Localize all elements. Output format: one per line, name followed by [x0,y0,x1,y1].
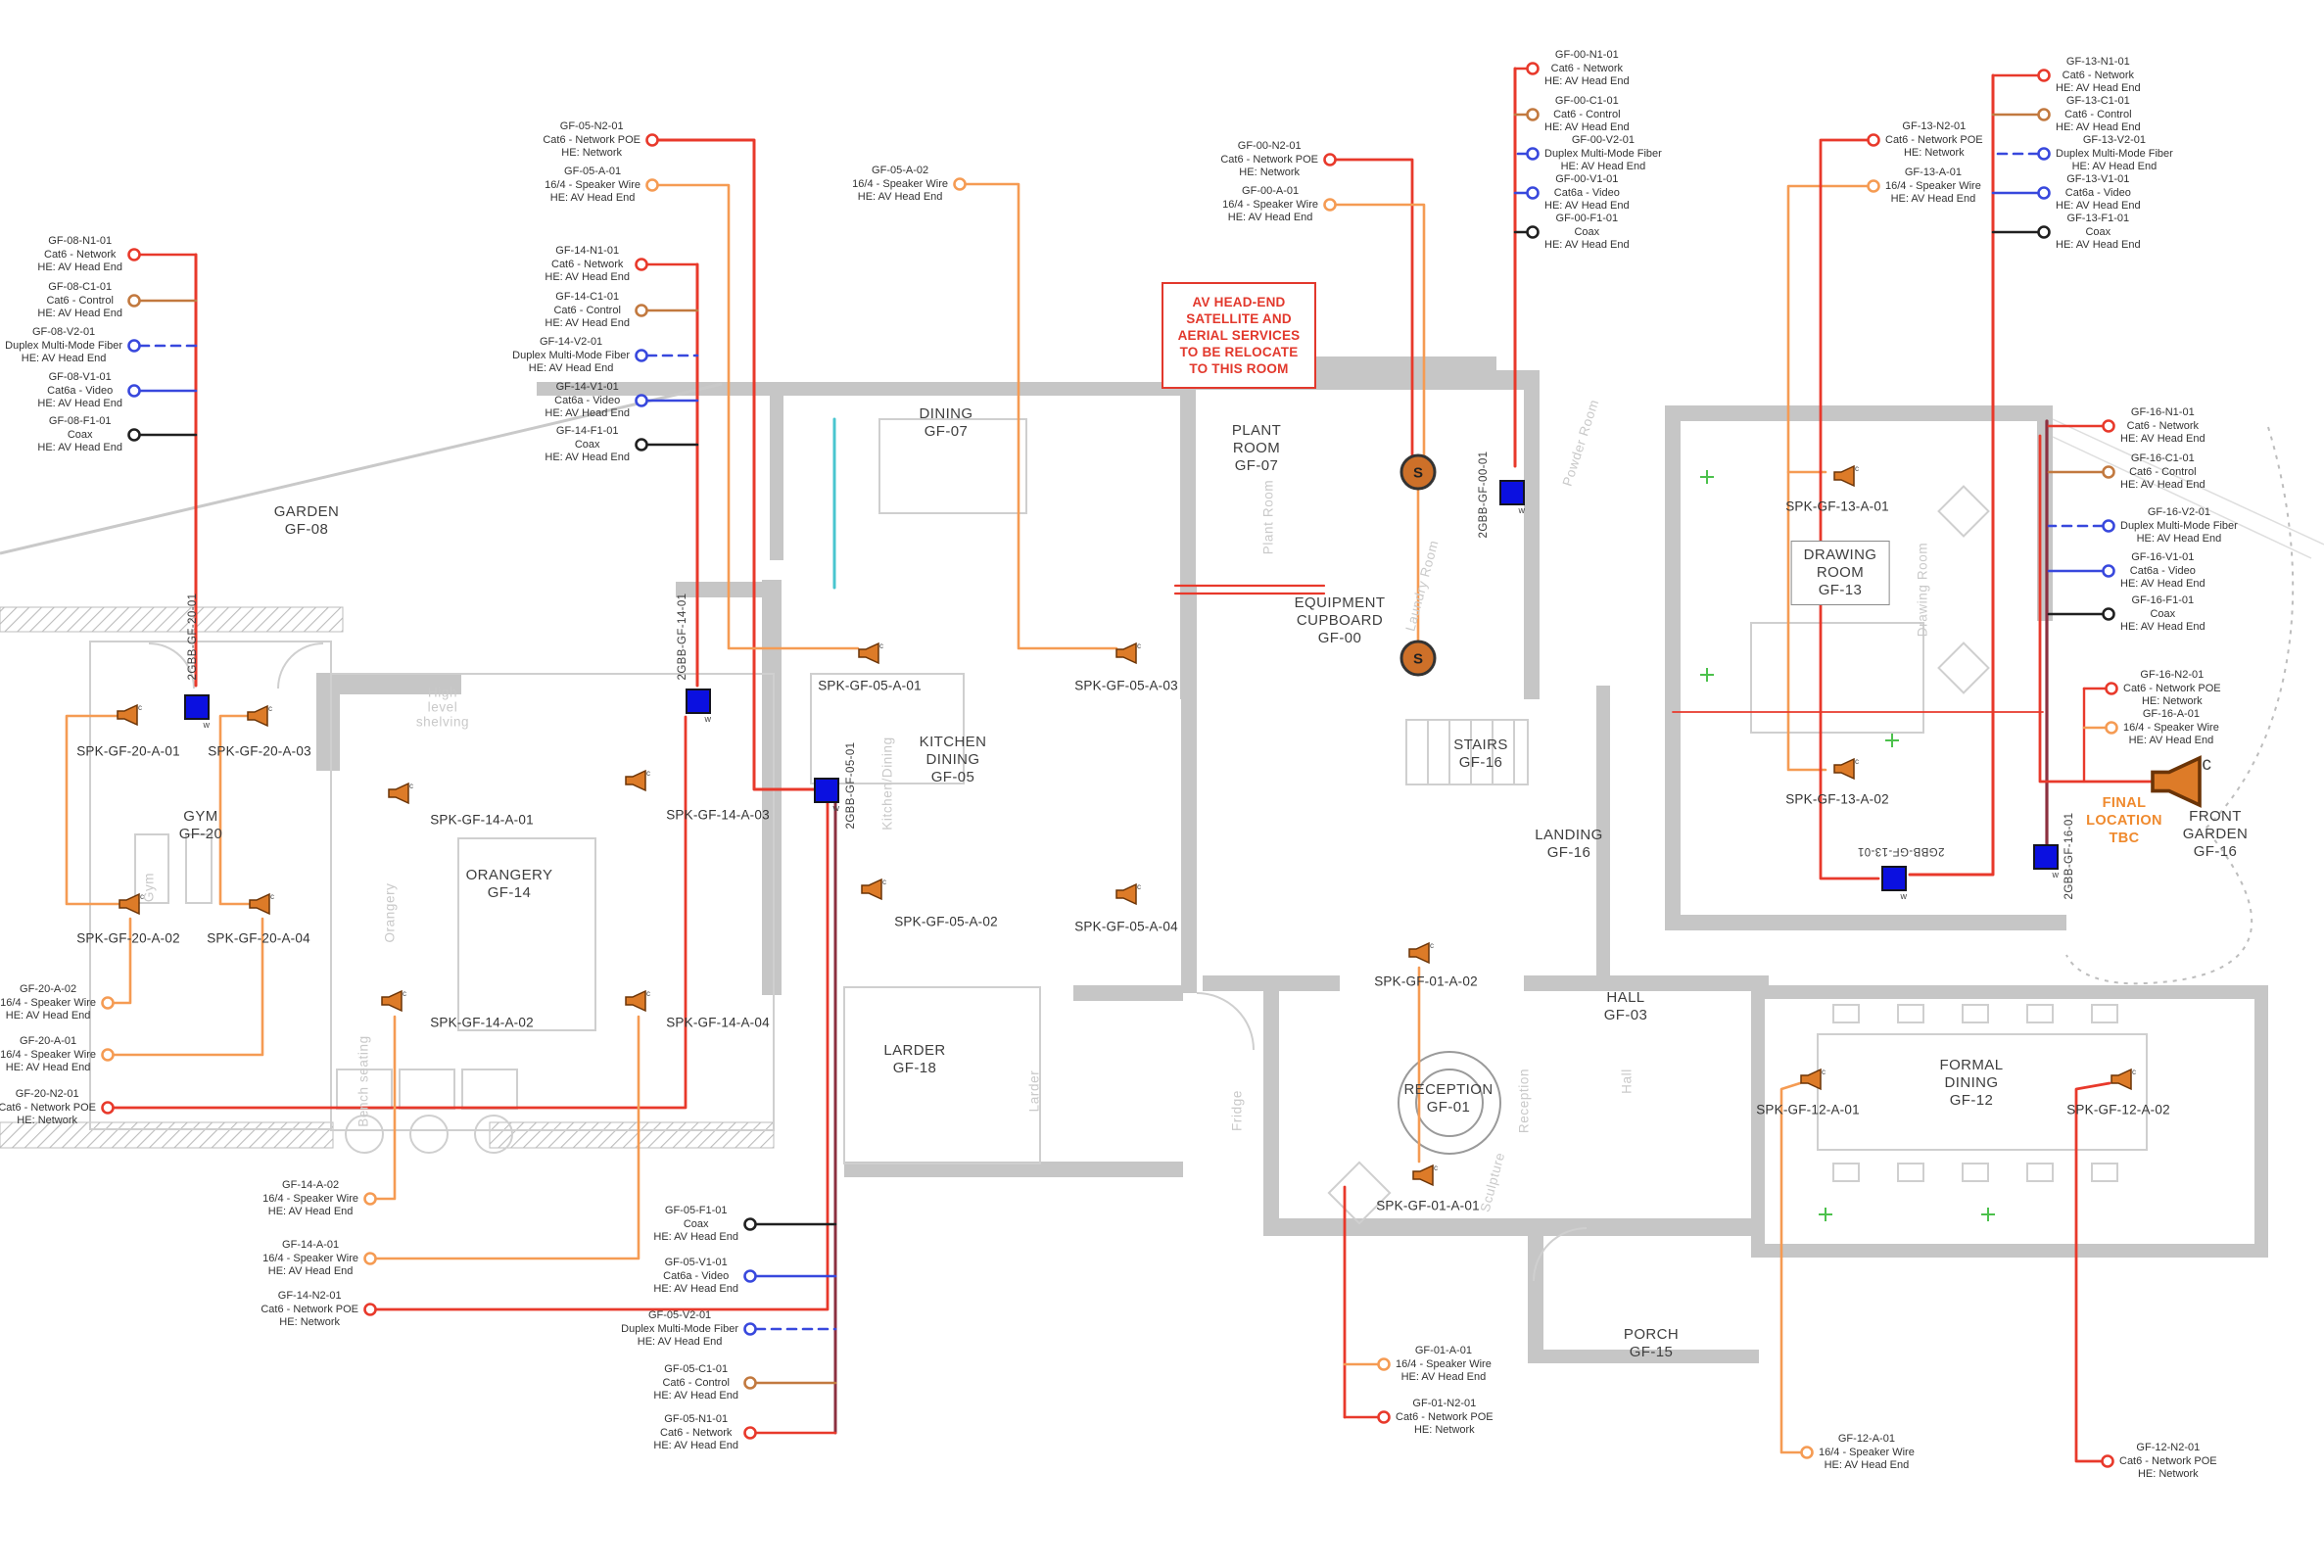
speaker-tag: c [879,641,883,650]
keypad-icon: w [184,694,210,720]
callout-he: HE: AV Head End [2120,578,2205,592]
callout-he: HE: AV Head End [545,192,640,206]
callout-id: GF-05-N2-01 [543,120,640,134]
speaker-label: SPK-GF-05-A-03 [1074,679,1178,693]
callout-id: GF-14-F1-01 [545,425,630,439]
cable-callout: GF-01-N2-01Cat6 - Network POEHE: Network [1396,1398,1494,1438]
callout-id: GF-16-A-01 [2123,708,2219,722]
cable-callout: GF-12-A-0116/4 - Speaker WireHE: AV Head… [1819,1433,1915,1473]
callout-cable: 16/4 - Speaker Wire [0,996,96,1010]
speaker-label: SPK-GF-05-A-02 [894,915,998,929]
keypad-icon: w [1881,866,1907,891]
speaker-label: SPK-GF-01-A-02 [1374,974,1478,989]
callout-id: GF-16-V2-01 [2120,506,2238,520]
callout-he: HE: AV Head End [262,1206,358,1219]
callout-id: GF-16-C1-01 [2120,452,2205,466]
room-label-line: LANDING [1535,827,1602,844]
speaker-label: SPK-GF-14-A-04 [666,1016,770,1030]
speaker-horn-shape [626,771,645,790]
callout-id: GF-00-F1-01 [1544,213,1630,226]
room-label-line: GF-01 [1403,1099,1493,1117]
callout-id: GF-13-N1-01 [2056,56,2141,70]
room-label-line: FRONT [2183,808,2249,826]
callout-he: HE: AV Head End [37,442,122,455]
room-label-line: GF-12 [1940,1092,2004,1110]
speaker-horn-icon: c [248,704,272,726]
cable-callout: GF-20-N2-01Cat6 - Network POEHE: Network [0,1088,96,1128]
cable-terminal-icon [647,180,658,191]
keypad-label: 2GBB-GF-00-01 [1478,451,1490,539]
room-label-line: DINING [1940,1074,2004,1092]
speaker-horn-icon: c [626,769,650,790]
cable-terminal-icon [745,1428,756,1439]
callout-id: GF-05-V1-01 [653,1257,738,1270]
callout-id: GF-05-A-01 [545,166,640,179]
callout-cable: Cat6 - Control [1544,108,1630,121]
cable-terminal-icon [745,1271,756,1282]
callout-cable: 16/4 - Speaker Wire [262,1252,358,1265]
speaker-horn-shape [118,705,137,725]
floorplan-canvas: cccccccccccccccccccSS AV HEAD-END SATELL… [0,0,2324,1568]
walls [316,356,2268,1363]
callout-cable: Duplex Multi-Mode Fiber [621,1322,738,1336]
speaker-horn-shape [862,879,881,899]
cable-terminal-icon [103,1103,114,1114]
speaker-tag: c [1855,757,1859,766]
callout-he: HE: AV Head End [2120,621,2205,635]
callout-cable: Coax [545,438,630,451]
callout-id: GF-16-N2-01 [2123,669,2221,683]
callout-cable: Cat6 - Network POE [261,1303,358,1316]
room-label-line: GF-07 [1232,457,1281,475]
callout-he: HE: Network [543,147,640,161]
cable-terminal-icon [2103,1456,2113,1467]
cable-terminal-icon [103,998,114,1009]
cable-callout: GF-14-A-0116/4 - Speaker WireHE: AV Head… [262,1239,358,1279]
cable-callout: GF-00-V2-01Duplex Multi-Mode FiberHE: AV… [1544,134,1662,174]
callout-he: HE: AV Head End [37,308,122,321]
cable-terminal-icon [647,135,658,146]
callout-cable: Cat6 - Control [2120,465,2205,479]
callout-cable: Cat6 - Network POE [1220,153,1318,166]
callout-cable: Cat6a - Video [653,1269,738,1283]
callout-cable: Cat6 - Network POE [1396,1410,1494,1424]
callout-id: GF-13-A-01 [1885,166,1981,180]
speaker-tag: c [138,703,142,712]
room-label: PORCHGF-15 [1624,1326,1679,1361]
cable-terminal-icon [637,396,647,406]
architect-label: Hall [1620,1069,1635,1094]
cable-callout: GF-12-N2-01Cat6 - Network POEHE: Network [2119,1442,2217,1482]
cable-callout: GF-05-F1-01CoaxHE: AV Head End [653,1205,738,1245]
callout-id: GF-05-A-02 [852,165,948,178]
callout-he: HE: Network [1885,147,1983,161]
room-label: GYMGF-20 [179,808,223,843]
callout-he: HE: AV Head End [1222,212,1318,225]
cable-callout: GF-14-V1-01Cat6a - VideoHE: AV Head End [545,381,630,421]
cable-terminal-icon [1802,1448,1813,1458]
cable-callout: GF-16-N2-01Cat6 - Network POEHE: Network [2123,669,2221,709]
note-line: SATELLITE AND [1167,310,1310,327]
callout-cable: 16/4 - Speaker Wire [262,1192,358,1206]
callout-id: GF-05-F1-01 [653,1205,738,1218]
cable-terminal-icon [2107,723,2117,734]
callout-id: GF-08-V2-01 [5,326,122,340]
satellite-node-label: S [1413,651,1423,668]
callout-cable: Cat6a - Video [37,384,122,398]
keypad-label: 2GBB-GF-13-01 [1858,845,1945,857]
callout-id: GF-16-V1-01 [2120,551,2205,565]
speaker-horn-icon: c [382,989,406,1011]
cable-callout: GF-08-V1-01Cat6a - VideoHE: AV Head End [37,371,122,411]
speaker-horn-icon: c [1801,1068,1826,1089]
cable-terminal-icon [745,1324,756,1335]
final-location-line: TBC [2086,830,2162,847]
note-line: TO THIS ROOM [1167,360,1310,377]
callout-he: HE: AV Head End [1544,239,1630,253]
callout-he: HE: Network [261,1316,358,1330]
speaker-tag: c [270,892,274,901]
cable-callout: GF-01-A-0116/4 - Speaker WireHE: AV Head… [1396,1345,1492,1385]
cable-terminal-icon [1528,188,1539,199]
cable-callout: GF-14-N1-01Cat6 - NetworkHE: AV Head End [545,245,630,285]
speaker-tag: c [2202,754,2211,775]
callout-he: HE: AV Head End [621,1336,738,1350]
architect-label: Kitchen/Dining [880,736,895,830]
cable-terminal-icon [1528,149,1539,160]
speaker-horn-icon: c [859,641,883,663]
speaker-tag: c [409,782,413,790]
cable-callout: GF-00-F1-01CoaxHE: AV Head End [1544,213,1630,253]
cable-callout: GF-14-A-0216/4 - Speaker WireHE: AV Head… [262,1179,358,1219]
callout-cable: 16/4 - Speaker Wire [1222,198,1318,212]
cable-callout: GF-14-F1-01CoaxHE: AV Head End [545,425,630,465]
callout-he: HE: AV Head End [37,398,122,411]
cable-run-speaker [960,184,1116,648]
callout-he: HE: AV Head End [0,1062,96,1075]
callout-id: GF-14-V2-01 [512,336,630,350]
speaker-label: SPK-GF-14-A-02 [430,1016,534,1030]
callout-id: GF-20-A-02 [0,983,96,997]
room-label: PLANTROOMGF-07 [1232,422,1281,475]
speaker-horn-shape [382,991,402,1011]
speaker-horn-icon: c [118,703,142,725]
callout-cable: Duplex Multi-Mode Fiber [5,339,122,353]
room-label-line: HALL [1604,989,1648,1007]
callout-he: HE: AV Head End [545,317,630,331]
cable-terminal-icon [637,440,647,451]
cable-terminal-icon [2039,227,2050,238]
room-label-line: GF-16 [1535,844,1602,862]
callout-id: GF-13-V1-01 [2056,173,2141,187]
room-label-line: GYM [179,808,223,826]
callout-cable: Duplex Multi-Mode Fiber [2056,147,2173,161]
callout-he: HE: AV Head End [545,271,630,285]
callout-cable: Coax [2120,607,2205,621]
cable-callout: GF-08-C1-01Cat6 - ControlHE: AV Head End [37,281,122,321]
room-label-line: DINING [920,405,973,423]
cable-callout: GF-16-V2-01Duplex Multi-Mode FiberHE: AV… [2120,506,2238,546]
room-label-line: ROOM [1804,564,1877,582]
keypad-tag: w [2053,870,2060,879]
speaker-tag: c [1137,641,1141,650]
callout-cable: 16/4 - Speaker Wire [1819,1446,1915,1459]
room-label-line: GF-08 [274,521,340,539]
callout-cable: Cat6 - Control [2056,108,2141,121]
callout-he: HE: AV Head End [1544,161,1662,174]
cable-terminal-icon [365,1305,376,1315]
speaker-tag: c [1137,882,1141,891]
plan-drawing: cccccccccccccccccccSS [0,0,2324,1568]
room-label: STAIRSGF-16 [1453,736,1507,772]
callout-cable: Cat6 - Control [653,1376,738,1390]
keypad-tag: w [705,714,712,724]
architect-label: Orangery [383,882,398,942]
callout-cable: Duplex Multi-Mode Fiber [2120,519,2238,533]
callout-id: GF-01-A-01 [1396,1345,1492,1358]
cable-run-speaker [1781,1083,1807,1452]
callout-he: HE: AV Head End [2120,533,2238,546]
callout-id: GF-05-N1-01 [653,1413,738,1427]
callout-cable: 16/4 - Speaker Wire [1396,1357,1492,1371]
architect-label: High level shelving [416,686,469,730]
speaker-tag: c [403,989,406,998]
cable-terminal-icon [1869,135,1879,146]
speaker-horn-shape [1413,1165,1433,1185]
callout-he: HE: Network [1396,1424,1494,1438]
callout-he: HE: AV Head End [2056,161,2173,174]
callout-id: GF-20-N2-01 [0,1088,96,1102]
room-label: EQUIPMENTCUPBOARDGF-00 [1295,594,1386,647]
callout-cable: Cat6a - Video [545,394,630,407]
callout-id: GF-13-C1-01 [2056,95,2141,109]
room-label-line: GF-15 [1624,1344,1679,1361]
cable-run-network [652,140,818,789]
relocation-note: AV HEAD-END SATELLITE AND AERIAL SERVICE… [1162,282,1316,389]
cable-terminal-icon [103,1050,114,1061]
callout-cable: 16/4 - Speaker Wire [1885,179,1981,193]
keypad-icon: w [686,689,711,714]
cable-terminal-icon [2039,110,2050,120]
note-line: TO BE RELOCATE [1167,344,1310,360]
callout-cable: Cat6 - Control [37,294,122,308]
room-label-line: GF-16 [2183,843,2249,861]
cable-terminal-icon [129,341,140,352]
speaker-label: SPK-GF-14-A-01 [430,813,534,828]
speaker-horn-icon: c [862,878,886,899]
cable-terminal-icon [2107,684,2117,694]
cable-terminal-icon [955,179,966,190]
speaker-tag: c [1430,941,1434,950]
cable-callout: GF-16-N1-01Cat6 - NetworkHE: AV Head End [2120,406,2205,447]
cable-callout: GF-13-N2-01Cat6 - Network POEHE: Network [1885,120,1983,161]
room-label-line: ORANGERY [466,867,553,884]
speaker-label: SPK-GF-12-A-02 [2066,1103,2170,1117]
callout-cable: Cat6 - Network [653,1426,738,1440]
room-label-line: STAIRS [1453,736,1507,754]
callout-he: HE: Network [0,1115,96,1128]
room-label-line: ROOM [1232,440,1281,457]
room-label: LANDINGGF-16 [1535,827,1602,862]
room-label-line: LARDER [883,1042,945,1060]
callout-he: HE: AV Head End [852,191,948,205]
callout-id: GF-01-N2-01 [1396,1398,1494,1411]
speaker-horn-shape [250,894,269,914]
cable-terminal-icon [365,1194,376,1205]
cable-terminal-icon [1528,64,1539,74]
room-label: HALLGF-03 [1604,989,1648,1024]
speaker-horn-shape [389,784,408,803]
cable-terminal-icon [1325,200,1336,211]
callout-he: HE: AV Head End [653,1390,738,1403]
cable-callout: GF-20-A-0216/4 - Speaker WireHE: AV Head… [0,983,96,1023]
cable-callout: GF-16-A-0116/4 - Speaker WireHE: AV Head… [2123,708,2219,748]
speaker-horn-shape [1834,466,1854,486]
cable-callout: GF-20-A-0116/4 - Speaker WireHE: AV Head… [0,1035,96,1075]
cable-callout: GF-16-F1-01CoaxHE: AV Head End [2120,594,2205,635]
callout-id: GF-05-V2-01 [621,1309,738,1323]
callout-id: GF-14-N1-01 [545,245,630,259]
cable-callout: GF-13-N1-01Cat6 - NetworkHE: AV Head End [2056,56,2141,96]
keypad-icon: w [814,778,839,803]
cable-callout: GF-05-N1-01Cat6 - NetworkHE: AV Head End [653,1413,738,1453]
callout-id: GF-16-N1-01 [2120,406,2205,420]
callout-id: GF-14-A-01 [262,1239,358,1253]
room-label-line: GF-13 [1804,582,1877,599]
callout-cable: Cat6 - Network [37,248,122,261]
cable-run-network [2076,1083,2110,1461]
callout-he: HE: AV Head End [37,261,122,275]
callout-cable: Cat6 - Network POE [0,1101,96,1115]
callout-id: GF-14-N2-01 [261,1290,358,1304]
cable-terminal-icon [745,1378,756,1389]
architect-label: Drawing Room [1916,543,1930,637]
callout-cable: Coax [37,428,122,442]
architect-label: Bench seating [356,1035,371,1126]
callout-id: GF-13-V2-01 [2056,134,2173,148]
callout-he: HE: AV Head End [2120,479,2205,493]
room-label: FRONTGARDENGF-16 [2183,808,2249,861]
speaker-horn-shape [119,894,139,914]
speaker-label: SPK-GF-20-A-01 [76,744,180,759]
speaker-horn-shape [626,991,645,1011]
callout-id: GF-00-N2-01 [1220,140,1318,154]
keypad-tag: w [1519,505,1526,515]
callout-id: GF-16-F1-01 [2120,594,2205,608]
room-label-line: PORCH [1624,1326,1679,1344]
callout-cable: 16/4 - Speaker Wire [852,177,948,191]
speaker-horn-shape [1801,1069,1821,1089]
callout-he: HE: Network [1220,166,1318,180]
callout-he: HE: AV Head End [1544,200,1630,214]
callout-he: HE: AV Head End [653,1440,738,1453]
speaker-horn-icon: c [250,892,274,914]
callout-cable: Cat6 - Network POE [1885,133,1983,147]
callout-cable: 16/4 - Speaker Wire [545,178,640,192]
cable-callout: GF-08-N1-01Cat6 - NetworkHE: AV Head End [37,235,122,275]
callout-he: HE: AV Head End [653,1283,738,1297]
cable-terminal-icon [365,1254,376,1264]
room-label: GARDENGF-08 [274,503,340,539]
callout-cable: Cat6 - Network POE [543,133,640,147]
architect-label: Larder [1027,1070,1042,1113]
callout-id: GF-12-N2-01 [2119,1442,2217,1455]
cable-callout: GF-08-F1-01CoaxHE: AV Head End [37,415,122,455]
speaker-tag: c [1434,1164,1438,1172]
callout-he: HE: AV Head End [545,407,630,421]
callout-id: GF-05-C1-01 [653,1363,738,1377]
cable-callout: GF-00-V1-01Cat6a - VideoHE: AV Head End [1544,173,1630,214]
callout-he: HE: AV Head End [0,1010,96,1023]
callout-id: GF-20-A-01 [0,1035,96,1049]
callout-id: GF-00-A-01 [1222,185,1318,199]
callout-id: GF-00-N1-01 [1544,49,1630,63]
room-label-line: PLANT [1232,422,1281,440]
keypad-tag: w [833,803,840,813]
speaker-horn-shape [248,706,267,726]
cable-callout: GF-13-C1-01Cat6 - ControlHE: AV Head End [2056,95,2141,135]
speaker-tag: c [2132,1068,2136,1076]
cable-terminal-icon [2039,71,2050,81]
cable-terminal-icon [637,351,647,361]
room-label-line: EQUIPMENT [1295,594,1386,612]
cable-callout: GF-05-A-0116/4 - Speaker WireHE: AV Head… [545,166,640,206]
callout-id: GF-08-V1-01 [37,371,122,385]
cable-terminal-icon [2104,421,2114,432]
cable-callout: GF-13-F1-01CoaxHE: AV Head End [2056,213,2141,253]
room-label-line: GF-16 [1453,754,1507,772]
cable-terminal-icon [1869,181,1879,192]
speaker-tag: c [646,989,650,998]
speaker-label: SPK-GF-05-A-04 [1074,920,1178,934]
callout-cable: Cat6a - Video [1544,186,1630,200]
cable-callout: GF-14-V2-01Duplex Multi-Mode FiberHE: AV… [512,336,630,376]
cable-terminal-icon [2104,521,2114,532]
cable-callout: GF-05-A-0216/4 - Speaker WireHE: AV Head… [852,165,948,205]
speaker-horn-shape [1409,943,1429,963]
speaker-label: SPK-GF-20-A-02 [76,931,180,946]
callout-cable: Cat6 - Network [2056,69,2141,82]
speaker-horn-icon: c [1116,641,1141,663]
cable-terminal-icon [129,250,140,261]
room-label: ORANGERYGF-14 [466,867,553,902]
cable-terminal-icon [745,1219,756,1230]
callout-he: HE: AV Head End [2056,200,2141,214]
speaker-horn-icon: c [1409,941,1434,963]
cable-terminal-icon [637,306,647,316]
callout-cable: Coax [653,1217,738,1231]
cable-terminal-icon [1528,110,1539,120]
cable-callout: GF-13-A-0116/4 - Speaker WireHE: AV Head… [1885,166,1981,207]
cable-callout: GF-05-N2-01Cat6 - Network POEHE: Network [543,120,640,161]
room-label-line: GF-03 [1604,1007,1648,1024]
callout-cable: Coax [2056,225,2141,239]
cable-run-network [110,717,686,1108]
callout-id: GF-14-A-02 [262,1179,358,1193]
callout-id: GF-14-C1-01 [545,291,630,305]
cable-callout: GF-00-N2-01Cat6 - Network POEHE: Network [1220,140,1318,180]
room-label-line: GF-00 [1295,630,1386,647]
cable-run-speaker [1330,205,1424,458]
cable-run-speaker [1788,186,1873,770]
callout-he: HE: AV Head End [1396,1371,1492,1385]
architect-label: Plant Room [1261,480,1276,555]
speaker-horn-icon: c [1116,882,1141,904]
room-label-line: DINING [920,751,987,769]
speaker-horn-shape [1116,643,1136,663]
keypad-icon: w [1499,480,1525,505]
callout-he: HE: AV Head End [545,451,630,465]
